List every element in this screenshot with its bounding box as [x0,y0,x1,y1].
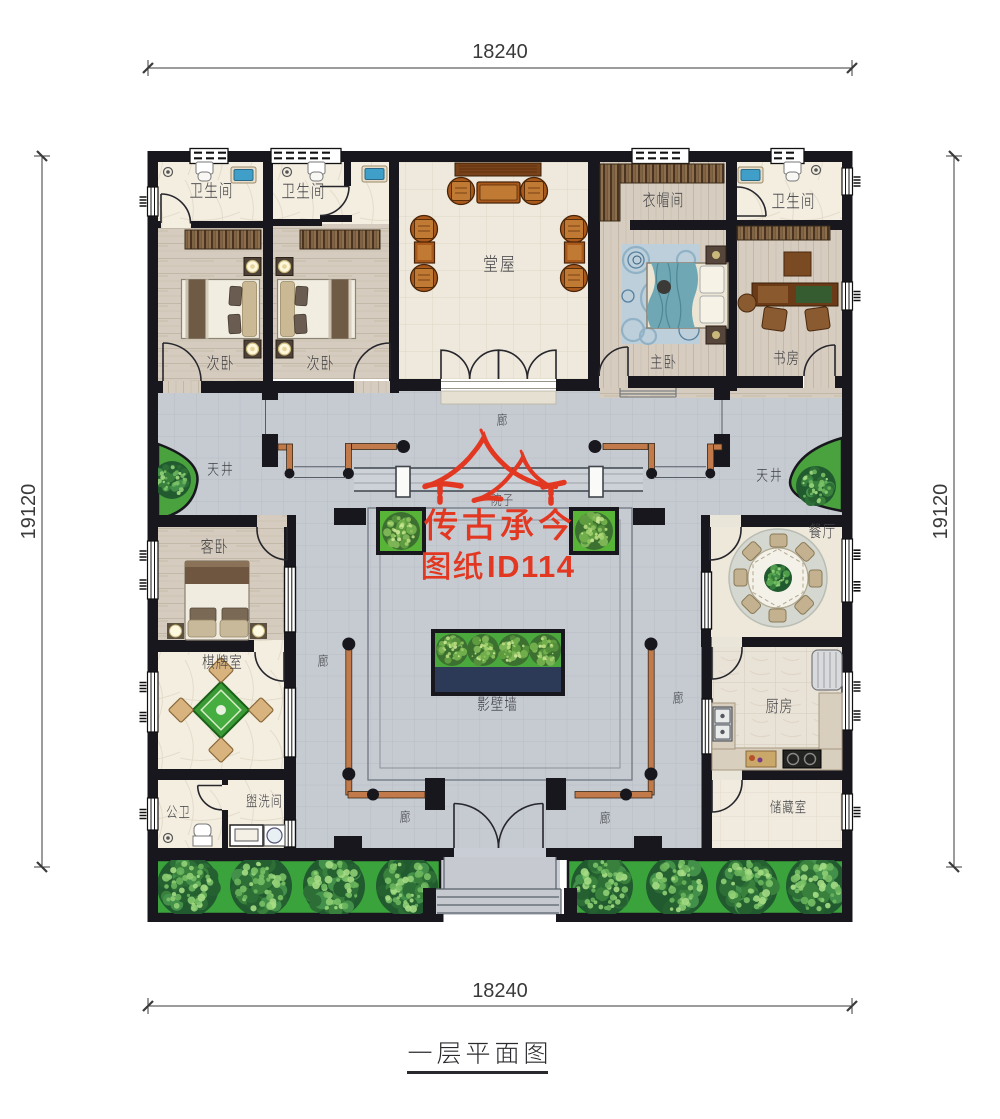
svg-text:18240: 18240 [472,41,528,63]
svg-text:19120: 19120 [930,484,952,540]
svg-text:19120: 19120 [18,484,40,540]
svg-text:18240: 18240 [472,980,528,1002]
svg-text:ID114: ID114 [487,549,576,584]
